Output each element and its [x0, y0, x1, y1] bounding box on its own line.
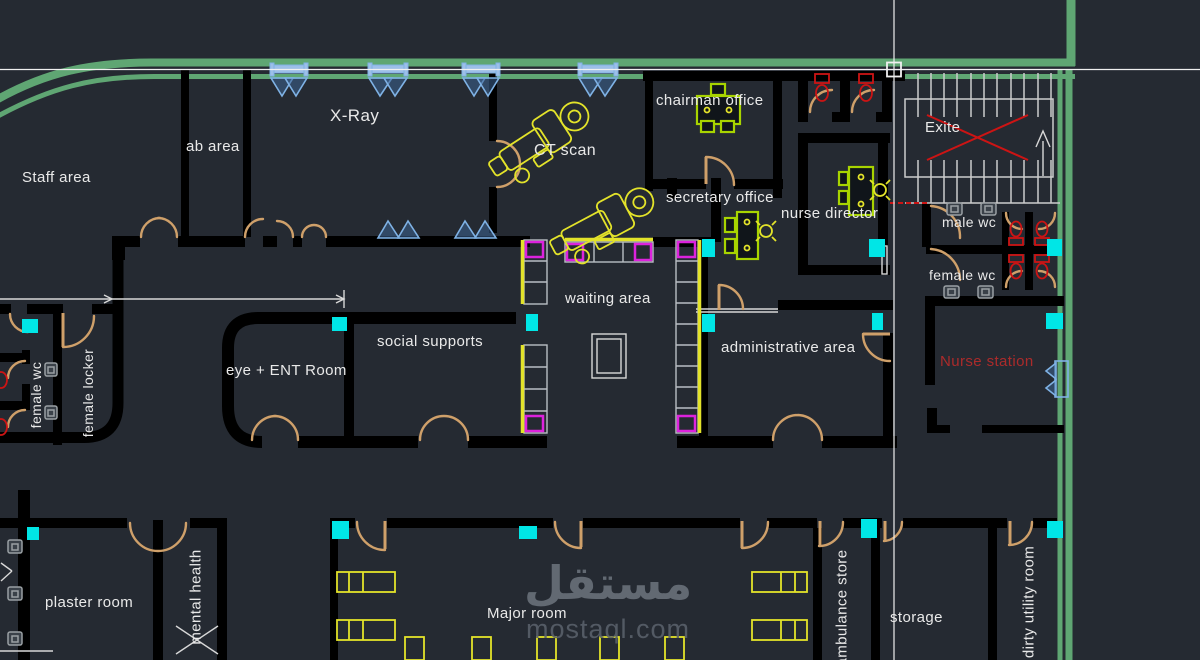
admin-threshold-line [696, 309, 778, 312]
room-label-waiting-area: waiting area [565, 290, 651, 307]
room-label-exit: Exite [925, 119, 960, 136]
bed-icon [752, 620, 807, 640]
waiting-bench [523, 240, 548, 304]
sink-icon [45, 406, 57, 419]
room-label-major-room: Major room [487, 605, 567, 622]
watermark-arabic: مستقل [524, 556, 674, 610]
room-label-female-wc-left: female wc [28, 362, 44, 429]
light-fixture-icon [22, 319, 38, 333]
light-fixture-icon [1047, 239, 1062, 256]
light-fixture-icon [861, 519, 877, 538]
room-label-ct-scan: CT scan [534, 142, 596, 160]
room-label-secretary-office: secretary office [666, 189, 774, 206]
room-label-female-wc-right: female wc [929, 267, 996, 283]
toilet-icon [1035, 255, 1049, 279]
light-fixture-icon [526, 314, 538, 331]
room-label-dirty-utility-room: dirty utility room [1021, 546, 1038, 658]
window-icon [368, 63, 408, 96]
light-fixture-icon [27, 527, 39, 540]
coffee-table [592, 334, 626, 378]
waiting-bench [523, 345, 548, 433]
room-label-staff-area: Staff area [22, 169, 91, 186]
room-label-eye-ent-room: eye + ENT Room [226, 362, 347, 379]
room-label-nurse-director: nurse director [781, 205, 878, 222]
waiting-bench [676, 240, 700, 433]
light-fixture-icon [1046, 313, 1063, 329]
bed-icon [752, 572, 807, 592]
room-label-ambulance-store: ambulance store [834, 550, 851, 660]
room-label-mental-health: mental health [188, 549, 205, 644]
desk-icon [725, 212, 776, 259]
light-fixture-icon [872, 313, 883, 330]
light-fixture-icon [702, 239, 715, 257]
toilet-icon [1009, 255, 1023, 279]
bed-icon [337, 620, 395, 640]
room-label-administrative-area: administrative area [721, 339, 855, 356]
sink-icon [978, 286, 993, 298]
sink-icon [8, 587, 22, 600]
room-label-plaster-room: plaster room [45, 594, 133, 611]
sink-icon [8, 540, 22, 553]
bed-icon [405, 637, 424, 660]
window-icon [270, 63, 308, 96]
room-label-nurse-station: Nurse station [940, 353, 1034, 370]
window-icon [578, 63, 618, 96]
bed-icon [337, 572, 395, 592]
room-label-xray: X-Ray [330, 106, 379, 126]
room-label-social-supports: social supports [377, 333, 483, 350]
sink-icon [45, 363, 57, 376]
light-fixture-icon [332, 317, 347, 331]
light-fixture-icon [332, 521, 349, 539]
toilet-icon [1009, 222, 1023, 246]
toilet-icon [0, 372, 7, 388]
room-label-female-locker: female locker [80, 349, 96, 437]
waiting-benches [523, 240, 700, 434]
light-fixture-icon [1047, 521, 1063, 538]
room-label-storage: storage [890, 609, 943, 626]
room-label-lab-area: ab area [186, 138, 240, 155]
window-icon [378, 221, 419, 238]
light-fixture-icon [702, 314, 715, 332]
light-fixture-icon [869, 239, 885, 257]
room-label-male-wc: male wc [942, 214, 996, 230]
room-label-chairman-office: chairman office [656, 92, 763, 109]
light-fixture-icon [519, 526, 537, 539]
staircase [890, 73, 1060, 203]
sink-icon [8, 632, 22, 645]
sink-icon [944, 286, 959, 298]
window-icon [1046, 361, 1068, 397]
toilet-icon [1035, 222, 1049, 246]
bed-icon [472, 637, 491, 660]
cad-floorplan-viewport: مستقل mostaql.com Staff area ab area X-R… [0, 0, 1200, 660]
